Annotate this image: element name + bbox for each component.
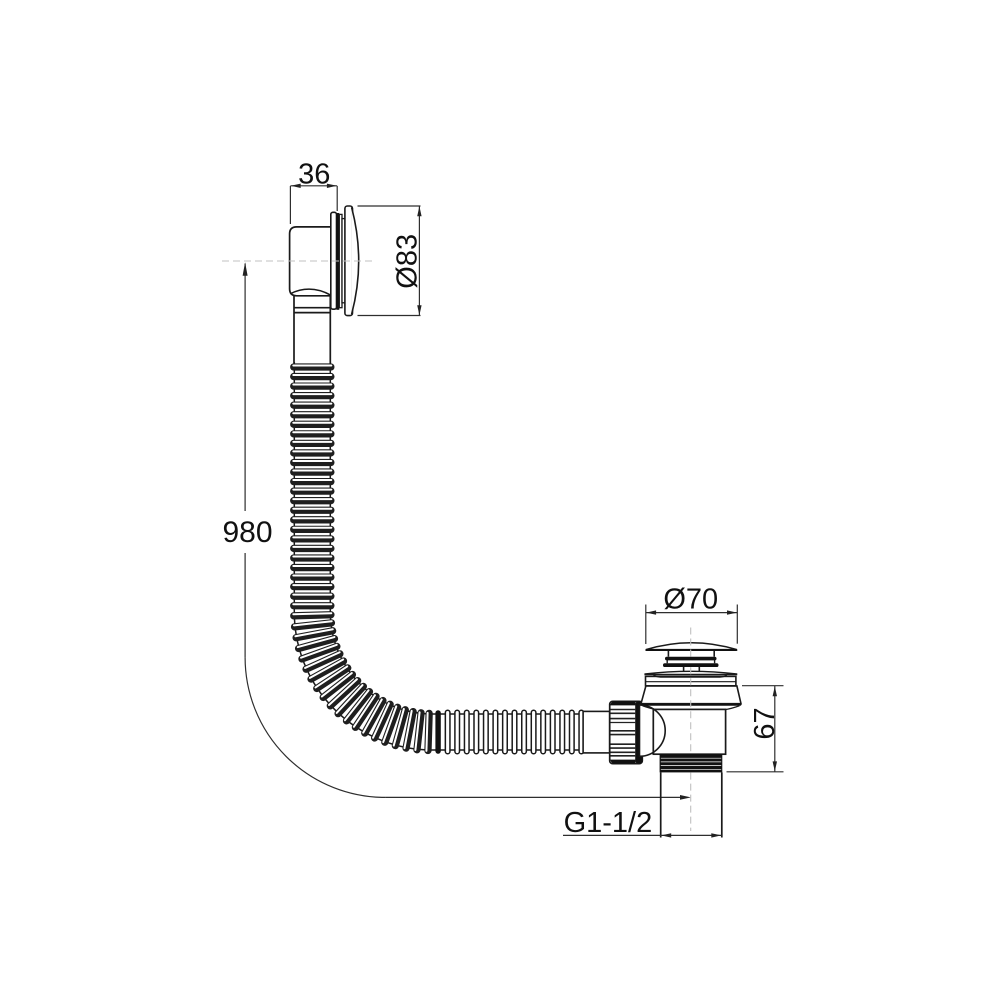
svg-text:Ø70: Ø70 — [663, 584, 718, 616]
svg-text:67: 67 — [749, 707, 781, 739]
svg-text:Ø83: Ø83 — [392, 234, 424, 289]
svg-text:36: 36 — [298, 159, 330, 191]
svg-text:G1-1/2: G1-1/2 — [564, 807, 653, 839]
svg-text:980: 980 — [222, 516, 272, 549]
